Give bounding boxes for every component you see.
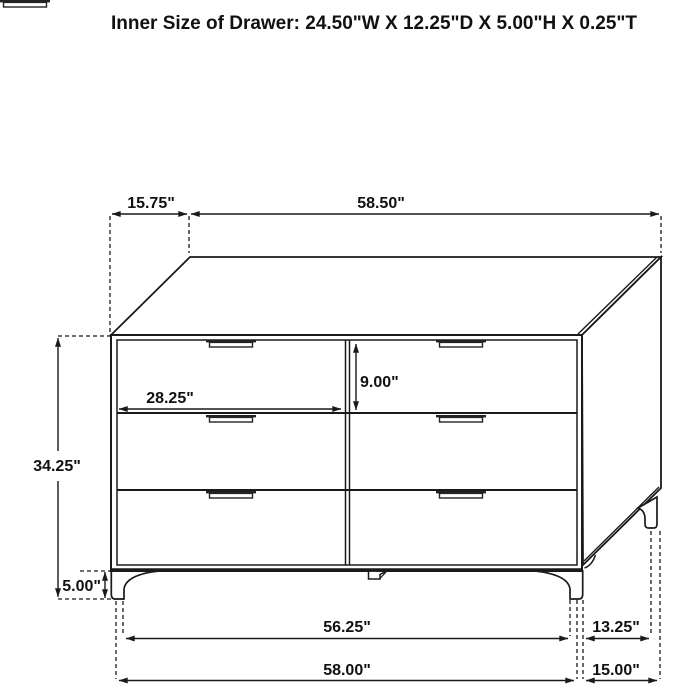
dresser-top-face: [111, 257, 661, 335]
page-title: Inner Size of Drawer: 24.50"W X 12.25"D …: [111, 13, 637, 34]
dim-side-leg-span-label: 13.25": [592, 619, 640, 636]
dresser-dimension-diagram: Inner Size of Drawer: 24.50"W X 12.25"D …: [0, 0, 700, 700]
dim-front-overall-width-label: 58.00": [323, 662, 371, 679]
dim-front-leg-span-label: 56.25": [323, 619, 371, 636]
dresser-front-face: [111, 335, 582, 571]
dim-top-depth-label: 15.75": [127, 195, 175, 212]
dim-height-label: 34.25": [33, 458, 81, 475]
dim-top-width-label: 58.50": [357, 195, 405, 212]
dim-drawer-width-label: 28.25": [146, 390, 194, 407]
dim-drawer-height-label: 9.00": [360, 374, 399, 391]
diagram-canvas: Inner Size of Drawer: 24.50"W X 12.25"D …: [0, 0, 700, 700]
dim-leg-height-label: 5.00": [62, 578, 101, 595]
dim-side-overall-depth-label: 15.00": [592, 662, 640, 679]
drawer-handle-icon: [0, 0, 50, 7]
